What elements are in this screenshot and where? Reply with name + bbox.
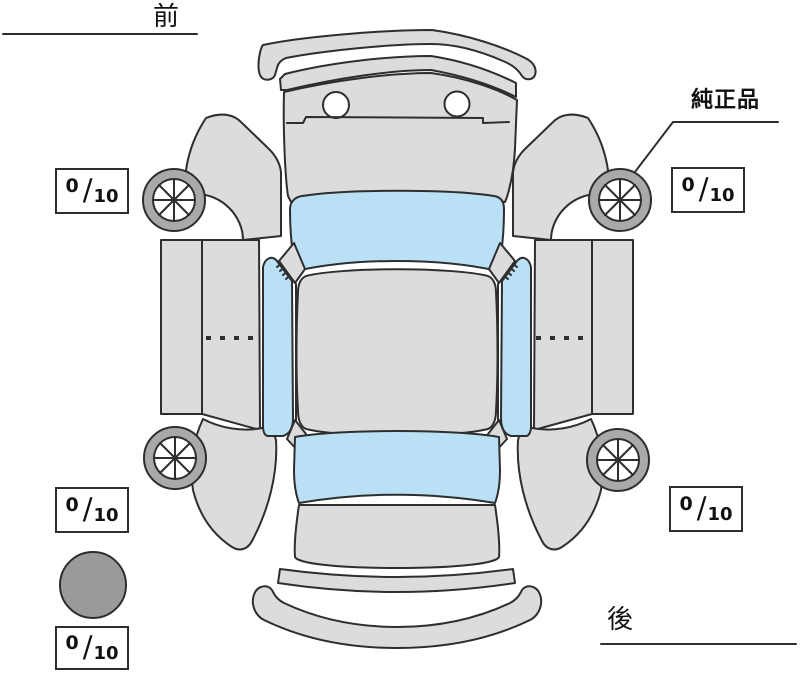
hood-panel <box>284 73 517 202</box>
genuine-part-label: 純正品 <box>691 90 760 112</box>
trunk-panel <box>295 505 500 568</box>
rear-direction-label: 後 <box>607 607 633 633</box>
right-side-window-glass <box>501 258 531 436</box>
rear-left-quarter-panel <box>191 419 276 549</box>
tread-value: 0 <box>681 174 694 196</box>
left-door-inner-panel <box>202 240 260 430</box>
tread-value: 0 <box>65 175 78 197</box>
tread-value: 0 <box>679 493 692 515</box>
windshield-glass <box>290 191 504 271</box>
right-door-outer-panel <box>592 240 633 414</box>
left-side-window-glass <box>263 258 293 436</box>
tread-max: 10 <box>93 643 118 664</box>
right-headlight-icon <box>445 92 470 117</box>
tread-max: 10 <box>93 505 118 526</box>
fraction-slash: / <box>699 172 709 206</box>
tread-depth-box-rear-left: 0 / 10 <box>55 487 129 533</box>
roof-panel <box>297 269 498 436</box>
tread-value: 0 <box>65 632 78 654</box>
rear-left-wheel-icon <box>144 427 206 489</box>
vehicle-inspection-diagram: 前 後 純正品 0 / 10 0 / 10 0 / 10 0 / 10 0 / … <box>0 0 800 675</box>
left-headlight-icon <box>323 92 349 118</box>
front-left-fender <box>185 115 281 240</box>
front-direction-label: 前 <box>153 4 179 30</box>
tread-value: 0 <box>65 494 78 516</box>
tread-max: 10 <box>93 186 118 207</box>
rear-panel <box>278 569 515 592</box>
rear-window-glass <box>294 431 500 503</box>
front-left-wheel-icon <box>143 169 205 231</box>
spare-tire-icon <box>60 552 126 618</box>
front-right-wheel-icon <box>589 169 651 231</box>
fraction-slash: / <box>697 491 707 525</box>
fraction-slash: / <box>83 173 93 207</box>
rear-bumper <box>253 586 541 648</box>
tread-depth-box-front-right: 0 / 10 <box>671 167 745 213</box>
rear-right-wheel-icon <box>587 429 649 491</box>
fraction-slash: / <box>83 630 93 664</box>
tread-depth-box-rear-right: 0 / 10 <box>669 486 743 532</box>
tread-max: 10 <box>707 504 732 525</box>
car-top-view-drawing <box>0 0 800 675</box>
left-door-outer-panel <box>161 240 202 414</box>
tread-depth-box-spare: 0 / 10 <box>55 626 129 670</box>
fraction-slash: / <box>83 492 93 526</box>
tread-depth-box-front-left: 0 / 10 <box>55 168 129 214</box>
tread-max: 10 <box>709 185 734 206</box>
rear-right-quarter-panel <box>518 419 603 549</box>
front-right-fender <box>513 115 609 240</box>
right-door-inner-panel <box>534 240 592 430</box>
